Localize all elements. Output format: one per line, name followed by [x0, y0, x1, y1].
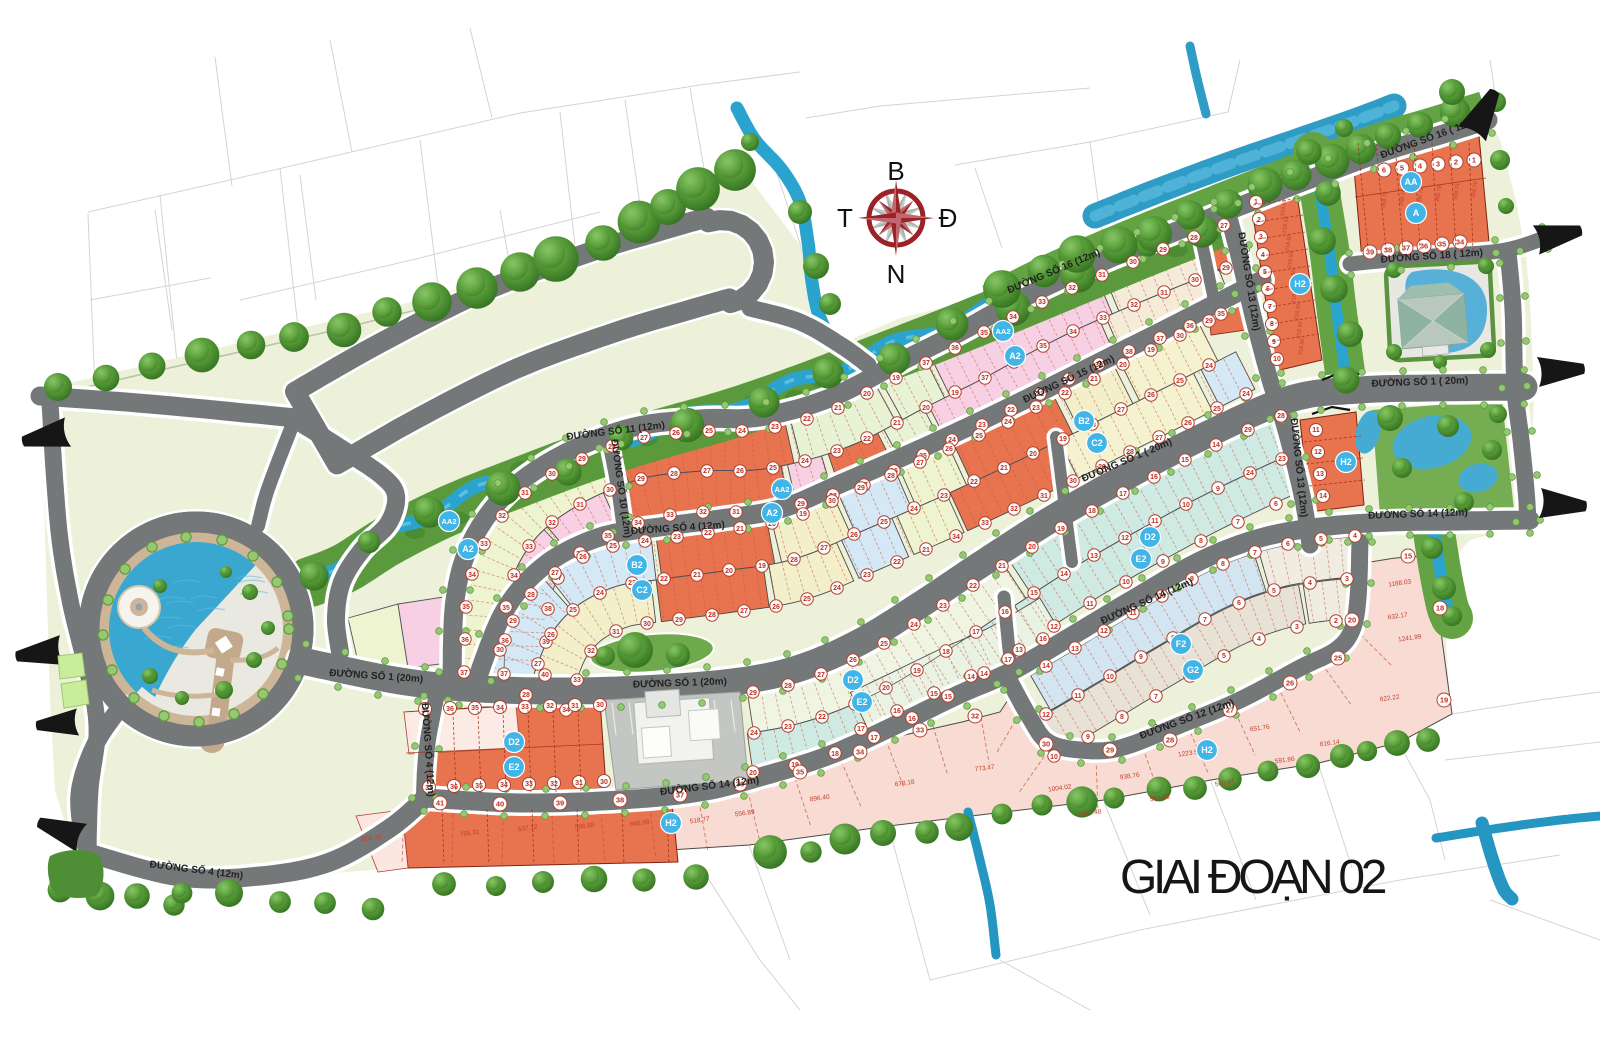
svg-text:28: 28	[790, 557, 798, 564]
svg-text:A: A	[1413, 208, 1420, 218]
svg-text:19: 19	[913, 668, 921, 675]
svg-text:30: 30	[606, 487, 614, 494]
svg-text:10: 10	[1050, 754, 1058, 761]
svg-text:36: 36	[446, 706, 454, 713]
svg-text:19: 19	[1057, 526, 1065, 533]
svg-text:18: 18	[1436, 604, 1444, 613]
svg-text:21: 21	[834, 405, 842, 412]
svg-text:23: 23	[940, 493, 948, 500]
svg-text:7: 7	[1203, 617, 1207, 624]
svg-text:B2: B2	[1078, 416, 1090, 426]
svg-text:28: 28	[784, 683, 792, 690]
svg-text:32: 32	[550, 781, 558, 788]
svg-text:33: 33	[573, 677, 581, 684]
svg-text:30: 30	[828, 498, 836, 505]
svg-text:8: 8	[1221, 561, 1225, 568]
svg-text:24: 24	[641, 538, 649, 545]
svg-text:12: 12	[1121, 535, 1129, 542]
svg-text:14: 14	[1042, 663, 1050, 670]
svg-text:25: 25	[975, 433, 983, 440]
svg-text:37: 37	[1156, 336, 1164, 343]
svg-text:33: 33	[666, 512, 674, 519]
svg-text:B: B	[887, 156, 904, 186]
svg-text:26: 26	[1147, 392, 1155, 399]
svg-text:5: 5	[1222, 653, 1226, 660]
svg-text:19: 19	[951, 390, 959, 397]
svg-text:36: 36	[450, 784, 458, 791]
svg-text:22: 22	[1061, 390, 1069, 397]
svg-text:21: 21	[998, 563, 1006, 570]
svg-text:7: 7	[1268, 304, 1272, 311]
svg-text:24: 24	[1242, 391, 1250, 398]
svg-text:34: 34	[1456, 238, 1465, 247]
svg-text:33: 33	[981, 520, 989, 527]
svg-text:35: 35	[462, 604, 470, 611]
svg-text:18: 18	[942, 649, 950, 656]
svg-text:31: 31	[521, 490, 529, 497]
svg-text:35: 35	[1438, 240, 1446, 249]
svg-text:12: 12	[1314, 449, 1322, 456]
svg-text:20: 20	[1119, 362, 1127, 369]
svg-text:15: 15	[1181, 457, 1189, 464]
svg-text:19: 19	[1059, 436, 1067, 443]
svg-text:21: 21	[1090, 376, 1098, 383]
svg-text:33: 33	[1038, 299, 1046, 306]
svg-text:10: 10	[1122, 579, 1130, 586]
svg-text:14: 14	[980, 671, 988, 678]
svg-text:C2: C2	[1091, 438, 1103, 448]
svg-text:2: 2	[1454, 158, 1458, 167]
svg-text:9: 9	[1161, 559, 1165, 566]
svg-text:27: 27	[703, 468, 711, 475]
svg-text:24: 24	[910, 622, 918, 629]
svg-text:6: 6	[1286, 541, 1290, 548]
svg-text:31: 31	[1098, 272, 1106, 279]
svg-text:21: 21	[1000, 465, 1008, 472]
svg-text:29: 29	[637, 476, 645, 483]
svg-text:20: 20	[1029, 451, 1037, 458]
svg-text:D2: D2	[847, 675, 859, 685]
svg-text:Đ: Đ	[939, 203, 958, 233]
svg-text:31: 31	[612, 629, 620, 636]
svg-text:27: 27	[534, 661, 542, 668]
svg-text:35: 35	[475, 783, 483, 790]
svg-text:32: 32	[498, 513, 506, 520]
svg-text:25: 25	[705, 428, 713, 435]
svg-text:35: 35	[471, 705, 479, 712]
svg-text:36: 36	[951, 345, 959, 352]
svg-text:17: 17	[972, 629, 980, 636]
svg-text:33: 33	[916, 726, 924, 735]
svg-text:E2: E2	[1135, 554, 1146, 564]
svg-text:23: 23	[771, 424, 779, 431]
svg-text:29: 29	[797, 501, 805, 508]
svg-text:20: 20	[1028, 544, 1036, 551]
svg-text:6: 6	[1274, 501, 1278, 508]
svg-text:35: 35	[1039, 343, 1047, 350]
svg-text:39: 39	[556, 799, 564, 808]
svg-text:16: 16	[1150, 474, 1158, 481]
svg-text:20: 20	[725, 568, 733, 575]
svg-text:27: 27	[916, 460, 924, 467]
svg-text:34: 34	[500, 782, 508, 789]
svg-text:23: 23	[784, 724, 792, 731]
svg-text:19: 19	[1147, 347, 1155, 354]
svg-text:37: 37	[922, 360, 930, 367]
svg-text:28: 28	[1190, 235, 1198, 242]
svg-text:22: 22	[970, 479, 978, 486]
svg-text:19: 19	[799, 511, 807, 518]
svg-text:24: 24	[1246, 470, 1254, 477]
svg-text:35: 35	[796, 768, 804, 777]
svg-text:3: 3	[1259, 234, 1263, 241]
svg-text:23: 23	[1032, 405, 1040, 412]
svg-text:33: 33	[480, 541, 488, 548]
svg-text:23: 23	[833, 448, 841, 455]
svg-text:8: 8	[1199, 538, 1203, 545]
svg-text:11: 11	[1312, 427, 1320, 434]
svg-text:26: 26	[849, 657, 857, 664]
svg-text:17: 17	[1119, 491, 1127, 498]
svg-text:30: 30	[548, 471, 556, 478]
svg-text:19: 19	[758, 563, 766, 570]
svg-text:40: 40	[541, 672, 549, 679]
svg-text:29: 29	[578, 456, 586, 463]
svg-text:E2: E2	[508, 762, 519, 772]
svg-text:35: 35	[980, 330, 988, 337]
svg-text:30: 30	[1191, 277, 1199, 284]
svg-text:23: 23	[863, 572, 871, 579]
svg-text:32: 32	[1068, 285, 1076, 292]
svg-text:29: 29	[509, 618, 517, 625]
svg-text:21: 21	[922, 547, 930, 554]
svg-text:33: 33	[521, 704, 529, 711]
svg-text:24: 24	[1004, 419, 1012, 426]
svg-text:29: 29	[1159, 247, 1167, 254]
svg-text:28: 28	[670, 471, 678, 478]
svg-text:25: 25	[1334, 654, 1342, 663]
svg-text:9: 9	[1139, 654, 1143, 661]
svg-text:1: 1	[1472, 156, 1476, 165]
svg-text:D2: D2	[508, 737, 520, 747]
svg-text:37: 37	[981, 375, 989, 382]
svg-text:22: 22	[818, 714, 826, 721]
svg-text:34: 34	[1009, 314, 1017, 321]
svg-text:A2: A2	[462, 544, 474, 554]
svg-text:34: 34	[510, 573, 518, 580]
svg-text:32: 32	[587, 648, 595, 655]
svg-text:B2: B2	[631, 560, 643, 570]
svg-text:36: 36	[1186, 323, 1194, 330]
svg-text:29: 29	[675, 617, 683, 624]
svg-text:3: 3	[1295, 624, 1299, 631]
svg-text:7: 7	[1236, 519, 1240, 526]
svg-text:21: 21	[736, 526, 744, 533]
svg-text:23: 23	[939, 603, 947, 610]
svg-text:26: 26	[547, 632, 555, 639]
svg-text:35: 35	[502, 605, 510, 612]
svg-text:24: 24	[910, 506, 918, 513]
svg-text:7: 7	[1154, 694, 1158, 701]
svg-text:38: 38	[544, 606, 552, 613]
svg-text:F2: F2	[1176, 639, 1187, 649]
svg-text:12: 12	[1042, 712, 1050, 719]
svg-text:E2: E2	[856, 697, 867, 707]
svg-text:30: 30	[1176, 333, 1184, 340]
svg-text:19: 19	[892, 375, 900, 382]
svg-text:27: 27	[817, 672, 825, 679]
svg-text:37: 37	[460, 670, 468, 677]
svg-text:29: 29	[1205, 318, 1213, 325]
svg-text:40: 40	[496, 800, 504, 809]
svg-text:4: 4	[1308, 580, 1312, 587]
svg-text:14: 14	[967, 674, 975, 681]
svg-text:22: 22	[969, 583, 977, 590]
svg-text:7: 7	[1253, 550, 1257, 557]
svg-text:12: 12	[1050, 624, 1058, 631]
svg-text:3: 3	[1345, 576, 1349, 583]
svg-text:17: 17	[870, 735, 878, 742]
svg-text:6: 6	[1237, 600, 1241, 607]
svg-text:8: 8	[1120, 714, 1124, 721]
svg-text:A2: A2	[766, 508, 778, 518]
svg-text:31: 31	[575, 780, 583, 787]
svg-text:5: 5	[1319, 536, 1323, 543]
svg-text:35: 35	[604, 533, 612, 540]
svg-text:N: N	[887, 259, 906, 289]
svg-text:H2: H2	[1340, 457, 1352, 467]
svg-text:30: 30	[1069, 478, 1077, 485]
svg-text:28: 28	[887, 473, 895, 480]
svg-text:32: 32	[699, 509, 707, 516]
svg-text:24: 24	[596, 590, 604, 597]
svg-text:30: 30	[643, 621, 651, 628]
svg-text:32: 32	[546, 703, 554, 710]
svg-text:9: 9	[1086, 734, 1090, 741]
svg-text:30: 30	[600, 779, 608, 786]
svg-text:39: 39	[1366, 248, 1374, 257]
svg-text:35: 35	[1217, 311, 1225, 318]
svg-text:24: 24	[833, 585, 841, 592]
svg-text:5: 5	[1400, 164, 1404, 173]
svg-text:13: 13	[1316, 471, 1324, 478]
svg-text:25: 25	[569, 607, 577, 614]
svg-text:31: 31	[571, 703, 579, 710]
svg-text:6: 6	[1382, 166, 1386, 175]
svg-text:H2: H2	[1201, 745, 1213, 755]
svg-text:38: 38	[1125, 349, 1133, 356]
svg-text:25: 25	[769, 465, 777, 472]
svg-text:27: 27	[551, 570, 559, 577]
svg-text:25: 25	[609, 543, 617, 550]
svg-text:AA2: AA2	[774, 485, 789, 494]
svg-text:18: 18	[831, 751, 839, 758]
svg-text:4: 4	[1353, 533, 1357, 540]
svg-text:2: 2	[1334, 618, 1338, 625]
svg-text:C2: C2	[636, 585, 648, 595]
svg-text:G2: G2	[1187, 665, 1199, 675]
svg-text:22: 22	[863, 436, 871, 443]
svg-text:16: 16	[908, 716, 916, 723]
svg-text:4: 4	[1257, 636, 1261, 643]
svg-text:26: 26	[772, 604, 780, 611]
svg-text:15: 15	[1030, 590, 1038, 597]
svg-text:28: 28	[522, 692, 530, 699]
svg-text:20: 20	[1348, 616, 1356, 625]
svg-text:27: 27	[1220, 223, 1228, 230]
svg-text:34: 34	[856, 748, 865, 757]
svg-text:11: 11	[1151, 518, 1159, 525]
svg-text:37: 37	[500, 671, 508, 678]
svg-text:27: 27	[740, 608, 748, 615]
svg-text:17: 17	[1004, 657, 1012, 664]
svg-text:23: 23	[1278, 456, 1286, 463]
svg-text:A2: A2	[1009, 351, 1021, 361]
svg-text:29: 29	[1244, 427, 1252, 434]
svg-text:32: 32	[1130, 302, 1138, 309]
svg-text:26: 26	[672, 430, 680, 437]
svg-text:15: 15	[1404, 552, 1412, 561]
svg-text:28: 28	[708, 612, 716, 619]
svg-text:17: 17	[857, 726, 865, 733]
svg-text:AA2: AA2	[441, 517, 456, 526]
svg-text:41: 41	[436, 799, 444, 808]
svg-text:23: 23	[673, 534, 681, 541]
svg-text:24: 24	[750, 730, 758, 737]
svg-text:30: 30	[1042, 740, 1050, 749]
svg-text:26: 26	[945, 446, 953, 453]
svg-text:AA2: AA2	[995, 327, 1010, 336]
svg-text:19: 19	[1440, 696, 1448, 705]
svg-text:8: 8	[1270, 321, 1274, 328]
svg-text:2: 2	[1257, 217, 1261, 224]
svg-text:25: 25	[880, 641, 888, 648]
svg-text:16: 16	[1039, 636, 1047, 643]
svg-text:22: 22	[1007, 407, 1015, 414]
svg-text:18: 18	[1088, 508, 1096, 515]
svg-text:24: 24	[801, 458, 809, 465]
svg-text:9: 9	[1272, 339, 1276, 346]
svg-text:24: 24	[1205, 363, 1213, 370]
svg-text:13: 13	[1071, 646, 1079, 653]
svg-text:33: 33	[525, 781, 533, 788]
svg-text:11: 11	[1074, 693, 1082, 700]
svg-text:27: 27	[640, 435, 648, 442]
svg-text:15: 15	[944, 694, 952, 701]
svg-text:30: 30	[496, 647, 504, 654]
svg-text:16: 16	[893, 708, 901, 715]
svg-text:25: 25	[803, 596, 811, 603]
svg-text:28: 28	[527, 592, 535, 599]
svg-text:20: 20	[882, 685, 890, 692]
svg-text:26: 26	[736, 468, 744, 475]
svg-text:22: 22	[893, 559, 901, 566]
svg-text:5: 5	[1272, 588, 1276, 595]
svg-text:36: 36	[1420, 242, 1428, 251]
svg-text:27: 27	[820, 545, 828, 552]
svg-text:20: 20	[863, 391, 871, 398]
svg-text:23: 23	[978, 422, 986, 429]
svg-text:38: 38	[616, 796, 624, 805]
svg-text:29: 29	[1222, 265, 1230, 272]
svg-text:32: 32	[1010, 506, 1018, 513]
svg-text:14: 14	[1319, 493, 1327, 500]
svg-text:22: 22	[660, 576, 668, 583]
svg-text:29: 29	[749, 690, 757, 697]
svg-text:31: 31	[1040, 493, 1048, 500]
svg-text:13: 13	[1090, 553, 1098, 560]
svg-text:21: 21	[693, 572, 701, 579]
svg-text:31: 31	[576, 502, 584, 509]
svg-text:25: 25	[880, 519, 888, 526]
svg-text:T: T	[837, 203, 853, 233]
svg-text:31: 31	[732, 509, 740, 516]
svg-text:GIAI ĐOẠN 02: GIAI ĐOẠN 02	[1120, 851, 1388, 904]
svg-text:24: 24	[738, 428, 746, 435]
svg-text:21: 21	[893, 420, 901, 427]
svg-text:30: 30	[596, 702, 604, 709]
svg-text:D2: D2	[1144, 532, 1156, 542]
svg-text:26: 26	[579, 554, 587, 561]
svg-text:26: 26	[1286, 679, 1294, 688]
svg-text:36: 36	[461, 637, 469, 644]
svg-text:14: 14	[1060, 571, 1068, 578]
svg-text:AA: AA	[1405, 177, 1418, 187]
svg-text:16: 16	[1001, 609, 1009, 616]
svg-text:10: 10	[1182, 502, 1190, 509]
svg-text:29: 29	[857, 485, 865, 492]
svg-text:15: 15	[930, 691, 938, 698]
svg-text:22: 22	[803, 416, 811, 423]
svg-text:3: 3	[1436, 160, 1440, 169]
svg-text:28: 28	[1166, 736, 1174, 745]
svg-text:10: 10	[1106, 674, 1114, 681]
svg-text:29: 29	[1106, 746, 1114, 755]
svg-text:10: 10	[1273, 356, 1281, 363]
svg-text:25: 25	[1213, 406, 1221, 413]
svg-text:H2: H2	[665, 818, 677, 828]
svg-text:34: 34	[1069, 329, 1077, 336]
svg-text:32: 32	[548, 520, 556, 527]
svg-text:11: 11	[1086, 601, 1094, 608]
svg-text:H2: H2	[1294, 279, 1306, 289]
svg-text:30: 30	[1129, 259, 1137, 266]
svg-text:27: 27	[1117, 407, 1125, 414]
svg-text:25: 25	[1176, 378, 1184, 385]
svg-text:31: 31	[1160, 290, 1168, 297]
svg-text:12: 12	[1100, 628, 1108, 635]
svg-text:26: 26	[1184, 420, 1192, 427]
svg-text:13: 13	[1015, 647, 1023, 654]
svg-text:26: 26	[850, 532, 858, 539]
svg-text:34: 34	[468, 572, 476, 579]
svg-text:33: 33	[525, 544, 533, 551]
svg-text:32: 32	[971, 712, 979, 721]
svg-text:20: 20	[922, 405, 930, 412]
svg-text:14: 14	[1212, 442, 1220, 449]
svg-text:34: 34	[952, 534, 960, 541]
svg-text:33: 33	[1099, 315, 1107, 322]
svg-text:28: 28	[1277, 413, 1285, 420]
svg-text:9: 9	[1216, 486, 1220, 493]
